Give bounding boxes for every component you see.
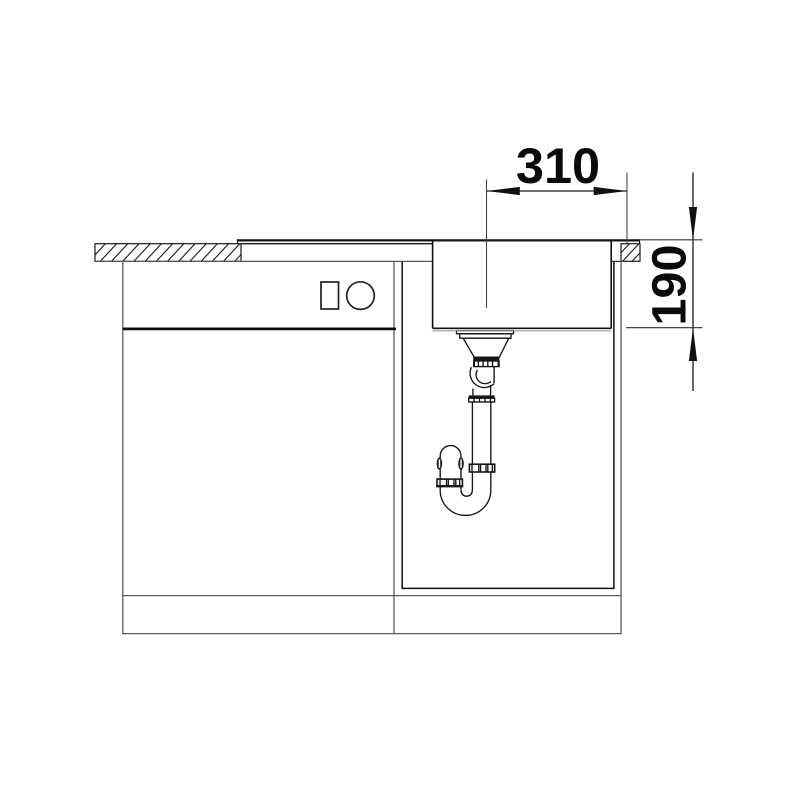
svg-text:190: 190 bbox=[643, 245, 697, 326]
svg-text:310: 310 bbox=[516, 137, 600, 194]
